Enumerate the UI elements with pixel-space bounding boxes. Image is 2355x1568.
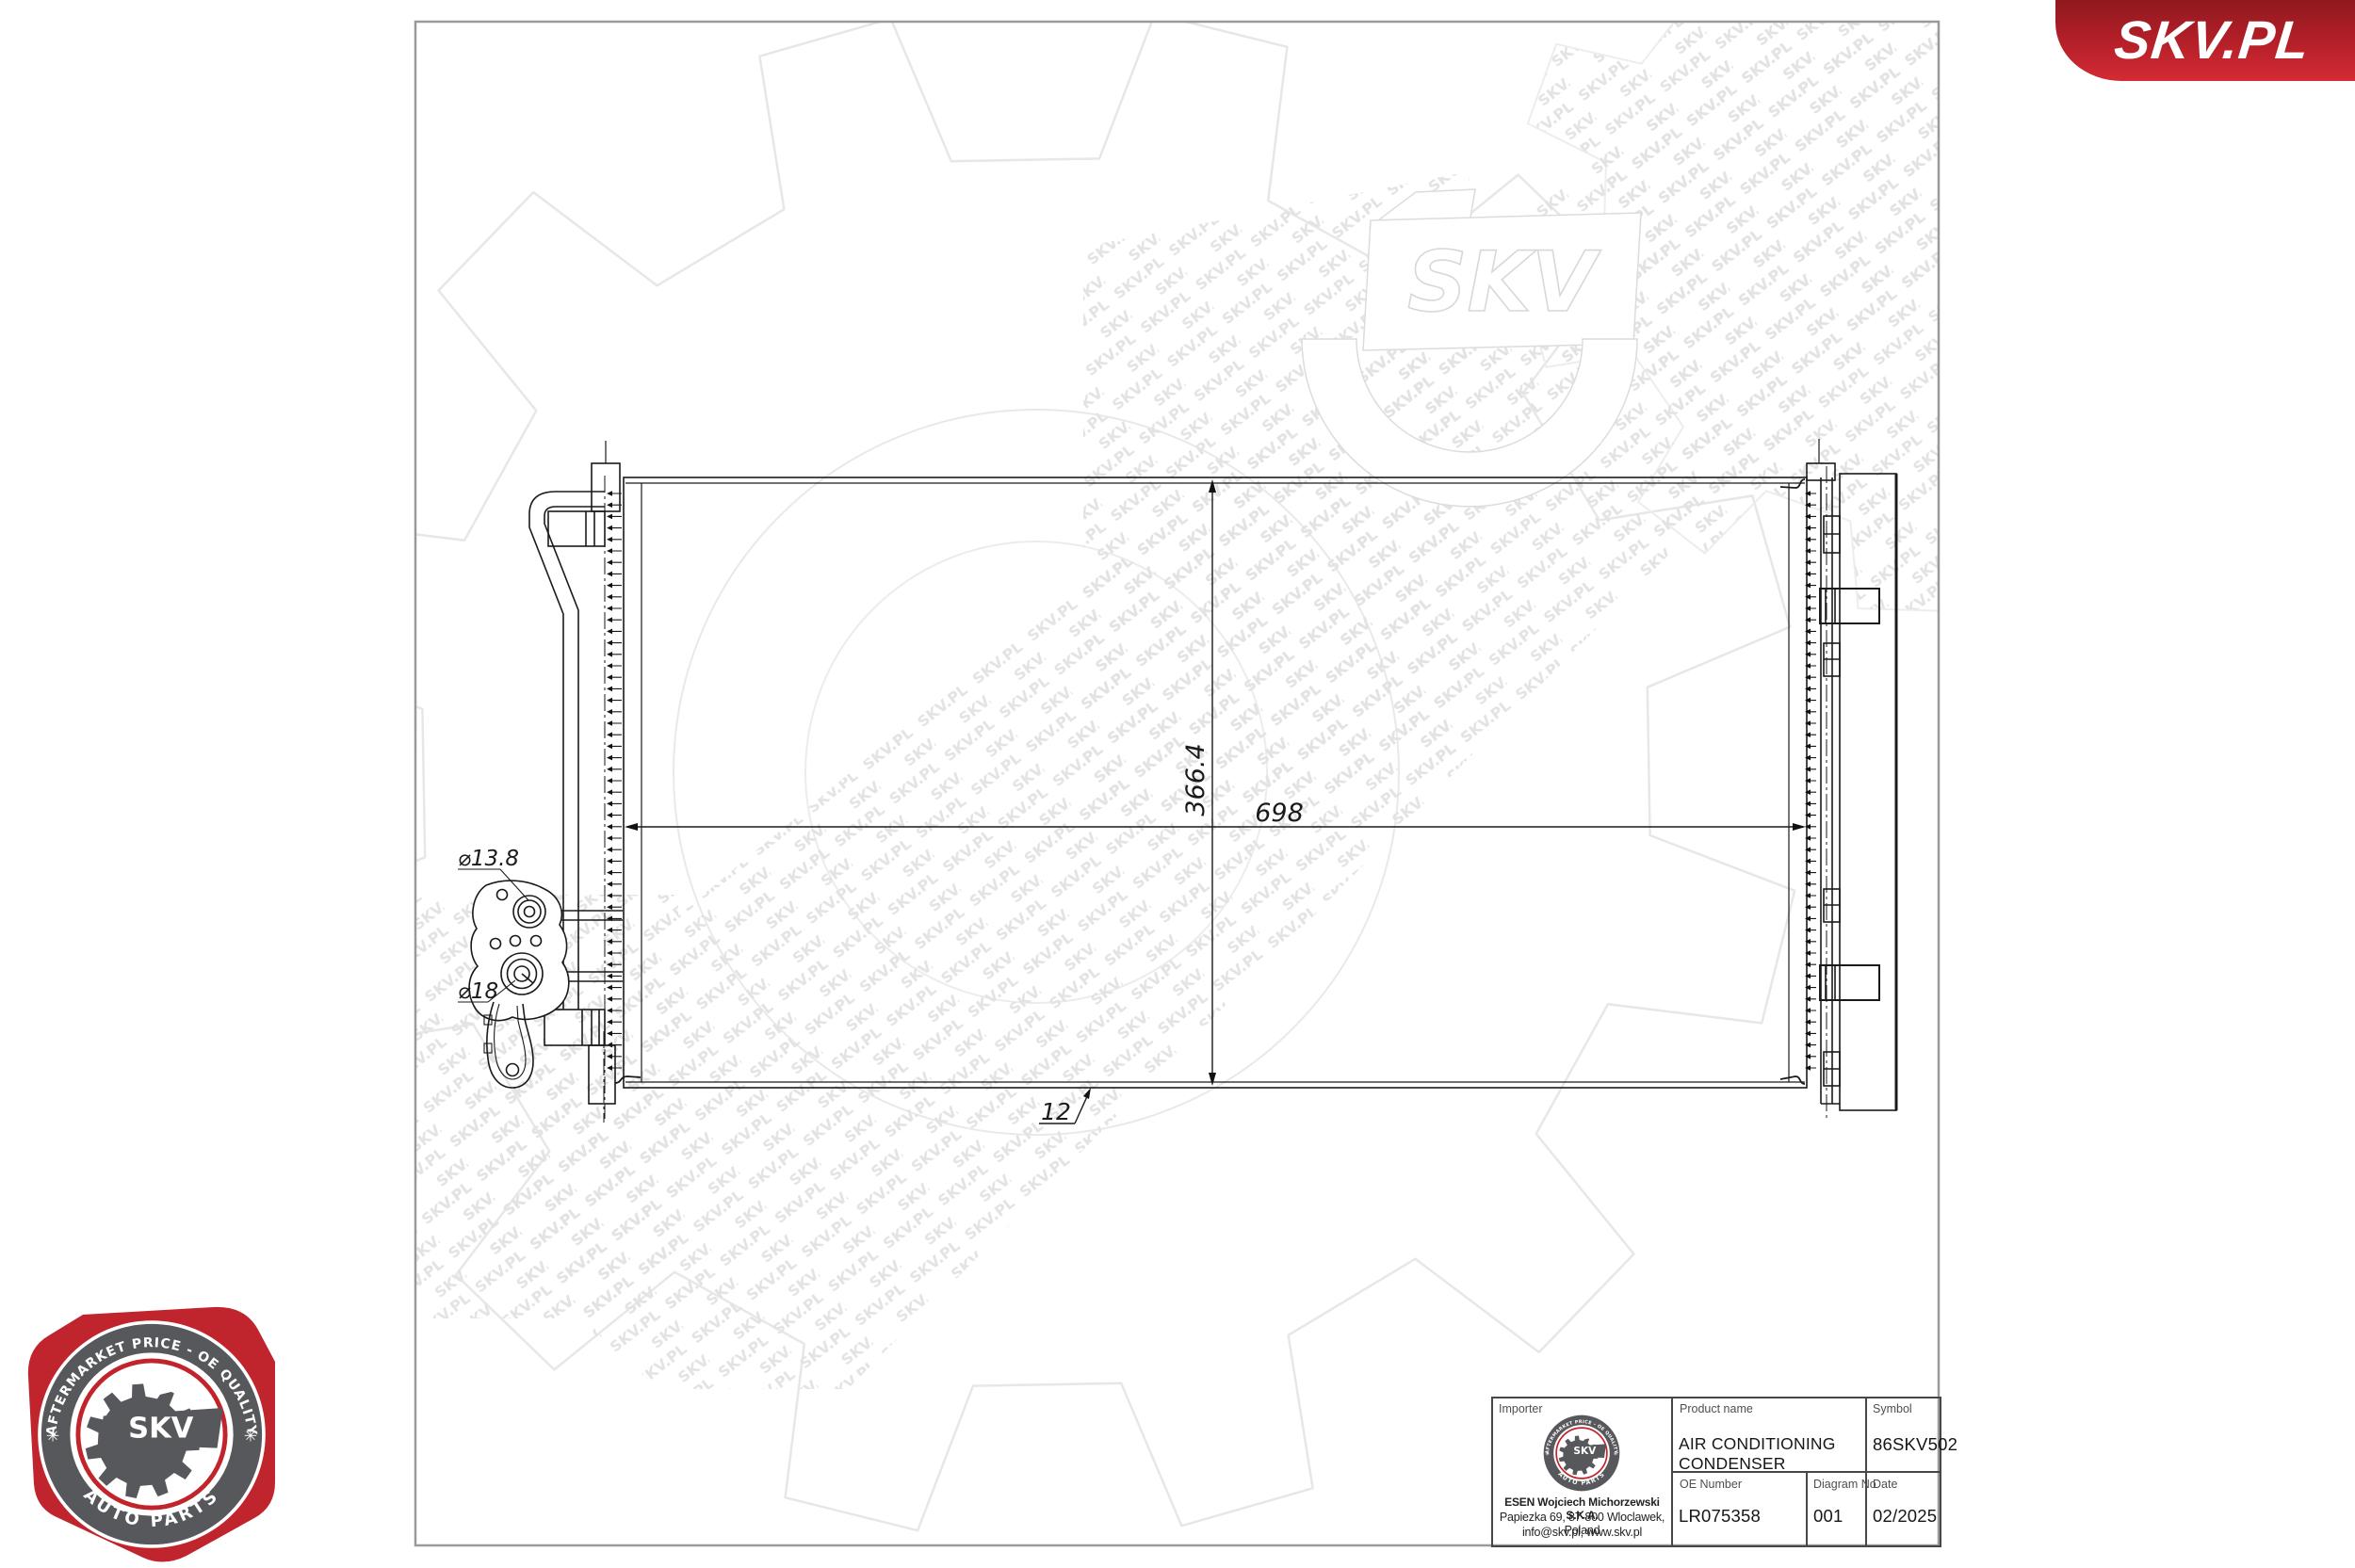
importer-label: Importer <box>1499 1402 1543 1415</box>
date-label: Date <box>1873 1478 1897 1491</box>
watermark-layer: SKV <box>278 0 2302 1530</box>
drawing-page: SKV.PL SKV.PL SKV <box>0 0 2355 1568</box>
right-fins <box>1811 493 1816 1068</box>
oe-number-value: LR075358 <box>1679 1506 1761 1527</box>
diagram-no-label: Diagram No <box>1813 1478 1876 1491</box>
skv-pl-banner: SKV.PL <box>2055 0 2355 81</box>
symbol-value: 86SKV502 <box>1873 1434 1957 1455</box>
technical-drawing: SKV.PL SKV.PL SKV <box>0 0 2355 1568</box>
importer-badge <box>1542 1414 1621 1493</box>
skv-badge <box>38 1320 266 1548</box>
oe-number-label: OE Number <box>1680 1478 1742 1491</box>
date-value: 02/2025 <box>1873 1506 1937 1527</box>
title-block: Importer ESEN Wojciech Michorzewski S.K.… <box>1491 1397 1941 1547</box>
dim-port-small: ⌀13.8 <box>458 847 519 871</box>
symbol-label: Symbol <box>1873 1402 1912 1415</box>
dim-height: 366.4 <box>1181 743 1210 816</box>
corner-logo <box>8 1290 300 1568</box>
left-tank-cap <box>592 463 620 511</box>
product-name-label: Product name <box>1680 1402 1753 1415</box>
dim-width: 698 <box>1255 799 1304 828</box>
dim-tube: 12 <box>1041 1098 1071 1125</box>
importer-contact: info@skv.pl, www.skv.pl <box>1493 1526 1671 1539</box>
skv-pl-logo-text: SKV.PL <box>2098 9 2313 72</box>
watermark-skv-text: SKV <box>1407 234 1601 331</box>
product-name-value: AIR CONDITIONING CONDENSER <box>1679 1434 1863 1474</box>
dim-port-large: ⌀18 <box>458 979 498 1004</box>
diagram-no-value: 001 <box>1813 1506 1843 1527</box>
mounting-bracket <box>1820 589 1879 1000</box>
